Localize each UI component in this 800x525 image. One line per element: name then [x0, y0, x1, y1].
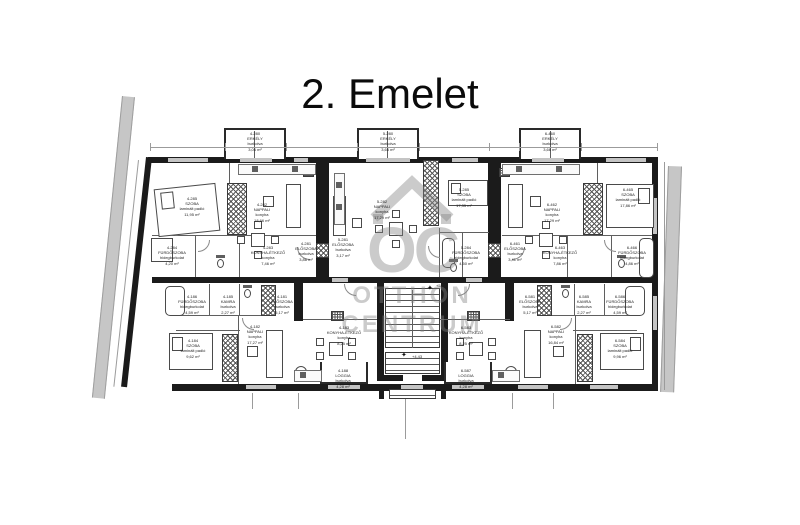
sink-icon: [498, 372, 504, 378]
window-opening: [294, 158, 308, 162]
chair-icon: [488, 352, 496, 360]
chair-icon: [375, 225, 383, 233]
dimension-tick: [405, 399, 406, 439]
room-label-5-282: 5-282NAPPALIkonyha17,29 m²: [359, 199, 405, 220]
door-arc-icon: [198, 240, 210, 252]
wall-segment: [152, 277, 658, 283]
door-opening: [466, 278, 482, 282]
sink-icon: [292, 166, 298, 172]
dimension-tick: [225, 143, 226, 151]
chair-icon: [316, 352, 324, 360]
window-opening: [240, 158, 272, 162]
window-opening: [452, 158, 478, 162]
room-label-4-182: 4-182NAPPALIkonyha17,27 m²: [232, 324, 278, 345]
sink-icon: [336, 182, 342, 188]
window-opening: [532, 158, 564, 162]
toilet-tank-icon: [561, 285, 570, 288]
scanned-floor-plan-page: 2. Emelet: [0, 0, 800, 525]
sofa-icon: [286, 184, 301, 228]
side-table-icon: [553, 346, 564, 357]
room-label-6-461: 6-461ELŐSZOBAburkolva3,41 m²: [492, 241, 538, 262]
partition-line: [573, 330, 637, 331]
sink-icon: [300, 372, 306, 378]
room-label-6-584: 6-584SZOBAlaminált padló9,96 m²: [597, 338, 643, 359]
room-label-6-587: 6-587LOGGIAburkolva4,28 m²: [443, 368, 489, 389]
toilet-tank-icon: [243, 285, 252, 288]
room-label-4-184: 4-184SZOBAlaminált padló9,62 m²: [170, 338, 216, 359]
partition-line: [195, 236, 196, 277]
level-star-icon: ✦: [401, 352, 407, 359]
dimension-line: [664, 162, 665, 390]
window-opening: [518, 385, 548, 389]
window-opening: [168, 158, 208, 162]
page-title: 2. Emelet: [0, 70, 780, 118]
window-opening: [653, 296, 657, 330]
partition-line: [176, 330, 240, 331]
sink-icon: [336, 204, 342, 210]
chair-icon: [392, 240, 400, 248]
dimension-tick: [252, 393, 253, 409]
dimension-tick: [419, 143, 420, 151]
window-opening: [590, 385, 618, 389]
sofa-icon: [508, 184, 523, 228]
level-marker: +5,87: [436, 283, 446, 288]
sink-icon: [556, 166, 562, 172]
level-marker: +4,43: [412, 354, 422, 359]
entrance-wall: [379, 387, 384, 399]
room-label-6-585: 6-585KAMRAburkolva2,27 m²: [561, 294, 607, 315]
dimension-tick: [357, 143, 358, 151]
chair-icon: [488, 338, 496, 346]
dimension-tick: [512, 393, 513, 409]
toilet-icon: [217, 259, 224, 268]
room-label-5-284: 5-284FÜRDŐSZOBAhidegburkolat4,50 m²: [443, 245, 489, 266]
room-label-6-583: 6-583KONYHA-ÉTKEZŐkonyha8,25 m²: [443, 325, 489, 346]
entrance-wall: [441, 387, 446, 399]
room-label-4-284: 4-284FÜRDŐSZOBAhidegburkolat4,20 m²: [149, 245, 195, 266]
kitchen-counter-icon: [502, 164, 580, 175]
window-opening: [246, 385, 276, 389]
hatched-column: [583, 183, 603, 235]
window-opening: [366, 158, 410, 162]
kitchen-counter-icon: [492, 370, 520, 382]
room-label-6-462: 6-462NAPPALIkonyha17,29 m²: [529, 202, 575, 223]
dimension-tick: [581, 143, 582, 151]
room-label-4-285: 4-285SZOBAlaminált padló11,95 m²: [169, 196, 215, 217]
room-label-4-280: 4-280ERKÉLYburkolva3,06 m²: [232, 131, 278, 152]
door-arc-icon: [344, 284, 356, 296]
room-label-5-281: 5-281ELŐSZOBAburkolva3,17 m²: [320, 237, 366, 258]
vent-grate-icon: [467, 311, 480, 321]
sink-icon: [252, 166, 258, 172]
side-table-icon: [247, 346, 258, 357]
door-arc-icon: [428, 246, 440, 258]
room-label-5-285: 5-285SZOBAlaminált padló17,35 m²: [441, 187, 487, 208]
window-opening: [606, 158, 646, 162]
room-label-6-466: 6-466FÜRDŐSZOBAhidegburkolat4,86 m²: [609, 245, 655, 266]
kitchen-counter-icon: [238, 164, 316, 175]
stairwell-wall: [377, 375, 403, 381]
room-label-6-463: 6-463KONYHA-ÉTKEZŐkonyha7,86 m²: [537, 245, 583, 266]
room-label-6-582: 6-582NAPPALIkonyha16,84 m²: [533, 324, 579, 345]
chair-icon: [271, 236, 279, 244]
chair-icon: [237, 236, 245, 244]
dimension-tick: [489, 143, 490, 151]
vent-grate-icon: [331, 311, 344, 321]
room-label-4-185: 4-185KAMRAburkolva2,27 m²: [205, 294, 251, 315]
stair-divider: [412, 290, 413, 348]
dimension-tick: [657, 143, 658, 151]
level-star-icon: ✦: [427, 285, 433, 292]
room-label-5-280: 5-280ERKÉLYburkolva3,66 m²: [365, 131, 411, 152]
dimension-tick: [298, 393, 299, 409]
room-label-4-188: 4-188LOGGIAburkolva4,28 m²: [320, 368, 366, 389]
room-label-4-183: 4-183KONYHA-ÉTKEZŐkonyha8,25 m²: [321, 325, 367, 346]
room-label-6-581: 6-581ELŐSZOBAburkolva5,17 m²: [507, 294, 553, 315]
dimension-tick: [519, 143, 520, 151]
toilet-tank-icon: [216, 255, 225, 258]
partition-line: [439, 232, 489, 233]
room-label-4-181: 4-181ELŐSZOBAburkolva5,17 m²: [259, 294, 305, 315]
dining-table-icon: [389, 222, 403, 236]
dimension-tick: [286, 143, 287, 151]
stairwell-wall: [377, 283, 384, 381]
kitchen-counter-icon: [334, 173, 345, 225]
wall-segment: [316, 157, 329, 243]
partition-line: [176, 315, 262, 316]
sink-icon: [516, 166, 522, 172]
room-label-6-460: 6-460ERKÉLYburkolva3,66 m²: [527, 131, 573, 152]
room-label-4-282: 4-282NAPPALIkonyha18,66 m²: [239, 202, 285, 223]
room-label-6-465: 6-465SZOBAlaminált padló17,86 m²: [605, 187, 651, 208]
chair-icon: [348, 352, 356, 360]
entrance-steps-icon: [389, 389, 436, 399]
hatched-column: [423, 160, 439, 226]
partition-line: [551, 315, 637, 316]
hatched-column: [577, 334, 593, 382]
dimension-tick: [150, 143, 151, 151]
dimension-tick: [553, 393, 554, 409]
chair-icon: [559, 236, 567, 244]
kitchen-counter-icon: [294, 370, 322, 382]
door-opening: [332, 278, 348, 282]
chair-icon: [456, 352, 464, 360]
chair-icon: [409, 225, 417, 233]
door-arc-icon: [458, 284, 470, 296]
